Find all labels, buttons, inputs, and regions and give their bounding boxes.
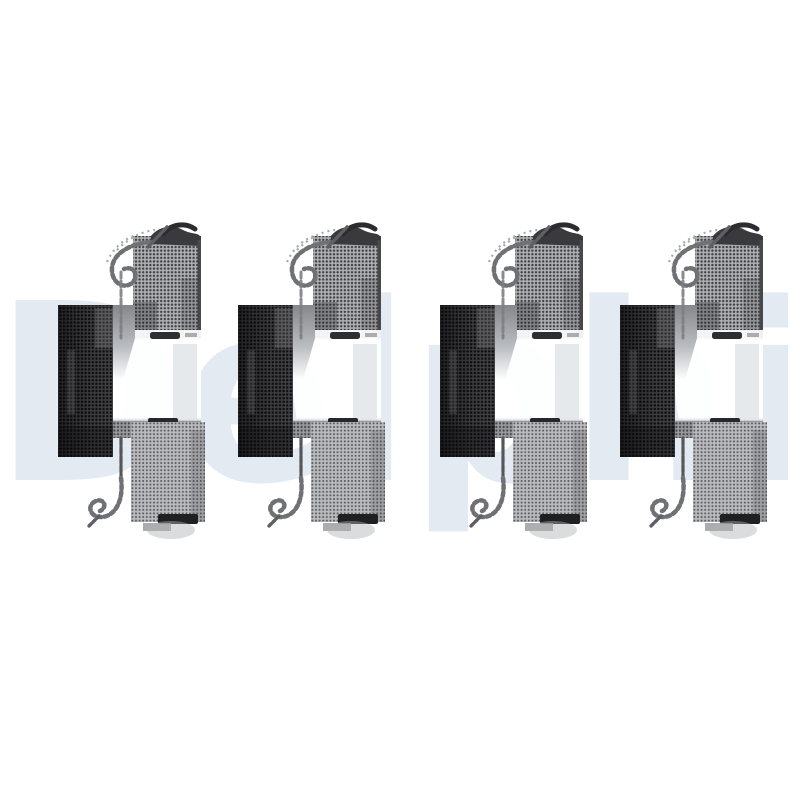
product-image-svg: Delphi (0, 0, 800, 800)
product-photo: Delphi (0, 0, 800, 800)
